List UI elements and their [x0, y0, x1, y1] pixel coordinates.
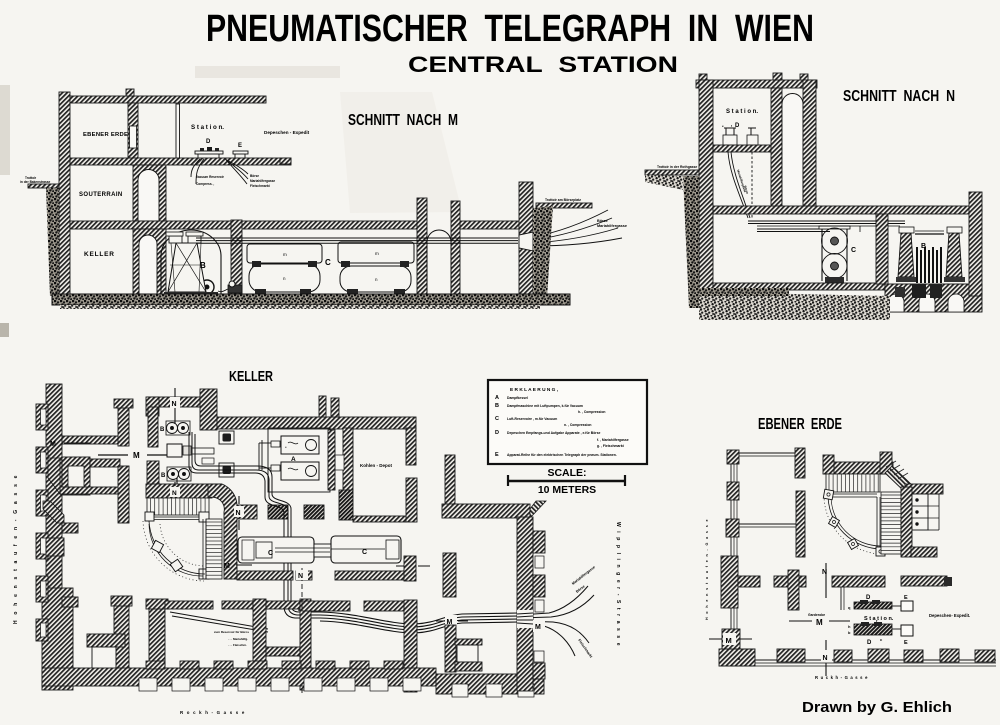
svg-text:B: B [200, 261, 206, 270]
svg-text:f: f [731, 124, 732, 128]
svg-text:E: E [904, 595, 908, 601]
svg-text:C: C [268, 550, 273, 557]
svg-text:B: B [161, 473, 166, 479]
svg-text:N: N [823, 655, 828, 662]
svg-text:SCHNITT NACH M: SCHNITT NACH M [348, 112, 458, 129]
svg-text:C: C [362, 549, 367, 556]
svg-text:E: E [904, 640, 908, 646]
svg-text:M: M [50, 441, 56, 448]
svg-text:S t a t i o n.: S t a t i o n. [191, 124, 224, 131]
svg-text:Trottoir am Börseplatz: Trottoir am Börseplatz [545, 198, 581, 202]
svg-text:N: N [298, 573, 303, 580]
svg-text:Börse: Börse [597, 219, 608, 223]
svg-text:W i p p l i n g e r - S t r: W i p p l i n g e r - S t r a s s e [615, 522, 621, 647]
svg-text:E R K L A E R U N G ,: E R K L A E R U N G , [510, 387, 559, 393]
svg-text:M: M [133, 451, 140, 460]
svg-text:EBENER ERDE: EBENER ERDE [758, 416, 842, 433]
svg-text:R u c k h - G a s s e: R u c k h - G a s s e [815, 675, 868, 680]
svg-text:zum Reservoir für Büros: zum Reservoir für Büros [214, 630, 249, 634]
svg-text:M: M [224, 563, 230, 570]
svg-text:n. , Compression: n. , Compression [564, 423, 592, 427]
svg-text:CENTRAL STATION: CENTRAL STATION [408, 52, 678, 77]
svg-text:Depeschen Empfangs-und Aufgabe: Depeschen Empfangs-und Aufgabe Apparate … [507, 431, 600, 435]
svg-text:EBENER ERDE: EBENER ERDE [83, 132, 128, 138]
svg-text:E: E [495, 452, 499, 458]
svg-text:Compress. ,: Compress. , [196, 182, 214, 186]
svg-text:E: E [238, 143, 242, 149]
svg-text:m: m [283, 252, 287, 257]
svg-text:in der Bakenstrasse: in der Bakenstrasse [20, 180, 51, 184]
svg-text:Vacuum Reservoir: Vacuum Reservoir [196, 175, 225, 179]
svg-text:S t a t i o n.: S t a t i o n. [864, 616, 894, 622]
svg-text:SOUTERRAIN: SOUTERRAIN [79, 192, 123, 198]
svg-text:. . . Fleischm.: . . . Fleischm. [228, 643, 247, 647]
svg-text:M: M [726, 636, 732, 645]
svg-text:SCHNITT NACH N: SCHNITT NACH N [843, 88, 955, 105]
svg-text:D: D [867, 640, 872, 646]
svg-text:Depeschen- Expedit.: Depeschen- Expedit. [929, 613, 970, 618]
svg-text:M: M [535, 624, 541, 631]
svg-text:. . . Mariahilfg.: . . . Mariahilfg. [228, 637, 248, 641]
svg-text:A: A [495, 395, 499, 401]
svg-text:Börse: Börse [250, 174, 259, 178]
svg-text:KELLER: KELLER [229, 368, 273, 385]
svg-text:SCALE:: SCALE: [547, 467, 586, 479]
svg-text:H o h e n s t a u f e n - G: H o h e n s t a u f e n - G a s s e [13, 473, 19, 624]
svg-text:Drawn by G. Ehlich: Drawn by G. Ehlich [802, 699, 952, 716]
svg-text:Kohlen - Depot: Kohlen - Depot [360, 463, 392, 468]
svg-text:R o c k h - G a s s e: R o c k h - G a s s e [180, 710, 245, 715]
svg-text:Fleischmarkt: Fleischmarkt [250, 184, 271, 188]
svg-text:Apparat-Reihe für den elektris: Apparat-Reihe für den elektrischen Teleg… [507, 453, 617, 457]
svg-text:Garderobe: Garderobe [808, 613, 825, 617]
svg-text:M: M [816, 618, 823, 627]
svg-text:C: C [495, 416, 499, 422]
svg-text:KELLER: KELLER [84, 251, 115, 258]
svg-text:N: N [172, 401, 177, 408]
svg-text:g. , Fleischmarkt: g. , Fleischmarkt [597, 444, 625, 448]
svg-text:N: N [822, 569, 827, 576]
svg-text:B: B [160, 427, 165, 433]
svg-text:Mariahilfergasse: Mariahilfergasse [250, 179, 275, 183]
svg-text:D: D [206, 139, 211, 145]
svg-text:B: B [921, 243, 926, 250]
svg-text:S t a t i o n.: S t a t i o n. [726, 109, 758, 115]
svg-text:PNEUMATISCHER TELEGRAPH IN: PNEUMATISCHER TELEGRAPH IN WIEN [206, 8, 814, 50]
svg-text:C: C [851, 247, 856, 254]
svg-text:N: N [172, 490, 177, 497]
svg-text:m: m [375, 251, 379, 256]
svg-text:h. , Compression: h. , Compression [578, 410, 606, 414]
svg-text:H o h e n s t a u f e n - G: H o h e n s t a u f e n - G a s s e [705, 518, 709, 620]
svg-text:Luft-Reservoire , m.für Vacuum: Luft-Reservoire , m.für Vacuum [507, 417, 557, 421]
svg-text:N: N [236, 510, 241, 517]
svg-text:10 METERS: 10 METERS [538, 484, 596, 496]
svg-text:f. , Mariahilfergasse: f. , Mariahilfergasse [597, 438, 629, 442]
svg-text:C: C [325, 258, 331, 267]
svg-text:Dampfmaschine mit Luftpumpen,: Dampfmaschine mit Luftpumpen, k.für Vacu… [507, 404, 583, 408]
svg-text:D: D [866, 595, 871, 601]
svg-text:Dampfkessel: Dampfkessel [507, 396, 528, 400]
svg-text:B: B [495, 403, 499, 409]
svg-text:Depeschen - Expedit: Depeschen - Expedit [264, 130, 310, 135]
svg-text:D: D [495, 430, 499, 436]
svg-text:Mariahilfergasse: Mariahilfergasse [597, 224, 627, 228]
svg-text:Trottoir in der Rothgasse: Trottoir in der Rothgasse [657, 165, 697, 169]
